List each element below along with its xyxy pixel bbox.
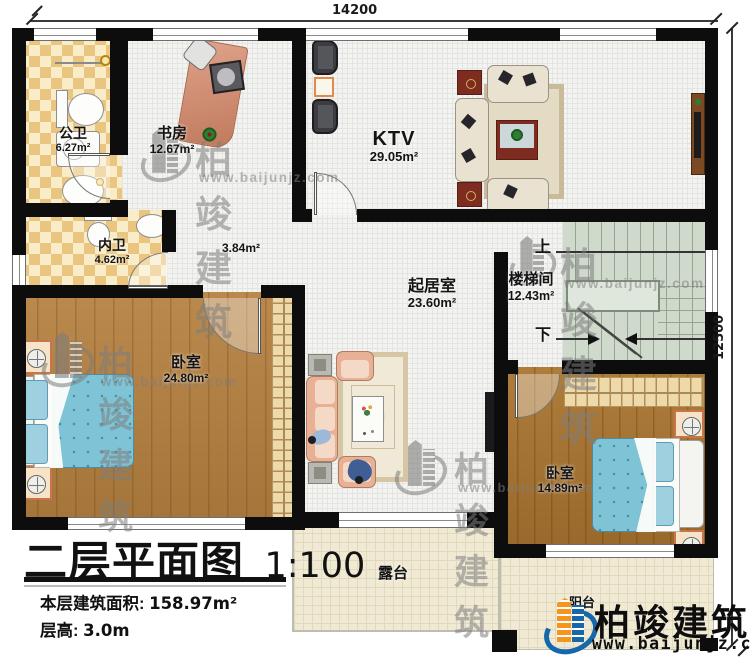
living-coffee-table xyxy=(352,396,384,442)
room-label-bedroom1: 卧室 24.80m² xyxy=(164,355,209,385)
stair-arrow-left-icon xyxy=(625,333,637,345)
room-label-public-bath: 公卫 6.27m² xyxy=(56,126,91,154)
living-end-table-bottom xyxy=(308,462,332,484)
wall xyxy=(292,209,312,222)
stair-landing-rail xyxy=(566,280,660,312)
stair-up-label: 上 xyxy=(535,239,551,257)
wall xyxy=(562,360,705,374)
room-label-inner-bath: 内卫 4.62m² xyxy=(95,238,130,266)
ktv-armchair-bottom-seat xyxy=(318,105,333,128)
wall-pier xyxy=(492,630,517,652)
stair-down-line-right xyxy=(637,338,705,340)
ktv-sofa-left xyxy=(455,98,489,182)
wall xyxy=(12,203,128,217)
ktv-door xyxy=(314,172,317,215)
ktv-cabinet-plant-icon xyxy=(694,98,702,106)
window xyxy=(705,250,718,312)
window xyxy=(34,28,96,41)
ktv-end-table-top xyxy=(457,70,482,95)
ktv-sofa-top xyxy=(487,65,549,103)
wall xyxy=(162,210,176,252)
room-label-ktv: KTV 29.05m² xyxy=(370,128,418,165)
window xyxy=(153,28,258,41)
brand-logo-icon xyxy=(548,596,592,648)
stair-down-line-left xyxy=(556,338,588,340)
ktv-tv-icon xyxy=(694,112,701,158)
wall xyxy=(494,252,508,367)
sliding-door xyxy=(546,544,674,558)
wall xyxy=(292,285,305,530)
desk-plant-icon xyxy=(202,127,217,142)
room-label-stairwell: 楼梯间 12.43m² xyxy=(508,272,555,303)
bedroom2-door xyxy=(515,374,518,418)
window xyxy=(560,28,656,41)
bedroom2-wardrobe xyxy=(564,377,704,407)
title-underline-thin xyxy=(24,585,286,587)
stair-down-label: 下 xyxy=(535,327,551,345)
ktv-side-table xyxy=(314,77,334,97)
dim-right-value: 12500 xyxy=(712,315,727,360)
wall xyxy=(292,28,306,222)
toilet-tank xyxy=(56,90,68,128)
room-label-living: 起居室 23.60m² xyxy=(408,278,456,310)
room-label-terrace: 露台 xyxy=(378,566,408,583)
sliding-door xyxy=(339,512,467,528)
person-figure-1-head xyxy=(355,476,363,484)
ktv-armchair-top-seat xyxy=(318,46,333,69)
bedroom1-wardrobe xyxy=(272,294,294,524)
living-end-table-top xyxy=(308,354,332,376)
floor-area-stat: 本层建筑面积: 158.97m² xyxy=(40,590,237,614)
stair-arrow-right-icon xyxy=(588,333,600,345)
window xyxy=(12,255,26,285)
inner-bath-door xyxy=(128,286,168,289)
dim-line-right xyxy=(731,28,733,646)
person-figure-2-head xyxy=(308,436,316,444)
wall xyxy=(674,544,718,558)
wall xyxy=(110,34,128,155)
wall xyxy=(494,544,546,558)
living-armchair-top xyxy=(336,351,374,381)
wall xyxy=(357,209,718,222)
title-underline xyxy=(24,577,286,582)
room-label-corridor: 3.84m² xyxy=(222,242,260,255)
wall xyxy=(12,285,203,298)
window xyxy=(300,28,468,41)
bedroom1-door xyxy=(258,298,261,354)
dim-top-value: 14200 xyxy=(332,3,377,18)
brand-url: www.baijunjz.com xyxy=(592,634,750,653)
room-label-bedroom2: 卧室 14.89m² xyxy=(538,466,583,495)
dim-tick xyxy=(710,13,722,25)
ktv-end-table-bottom xyxy=(457,182,482,207)
bedroom2-headboard xyxy=(678,440,704,528)
floor-height-stat: 层高: 3.0m xyxy=(40,617,130,641)
room-label-study: 书房 12.67m² xyxy=(150,126,195,156)
ktv-table-plant-icon xyxy=(510,128,524,142)
stair-up-line xyxy=(556,251,705,253)
wall xyxy=(468,28,560,41)
dim-line-top xyxy=(30,20,718,22)
wall xyxy=(305,512,339,528)
stair-winders xyxy=(658,284,705,346)
bedroom2-nightstand-top xyxy=(674,410,704,438)
wall xyxy=(12,28,26,255)
wall xyxy=(494,360,508,558)
floorplan-canvas: 柏竣建筑 www.baijunjz.com 柏竣建筑 www.baijunjz.… xyxy=(0,0,750,664)
toilet-bowl xyxy=(68,93,104,126)
wall xyxy=(12,285,26,530)
living-sofa-left xyxy=(306,376,338,462)
